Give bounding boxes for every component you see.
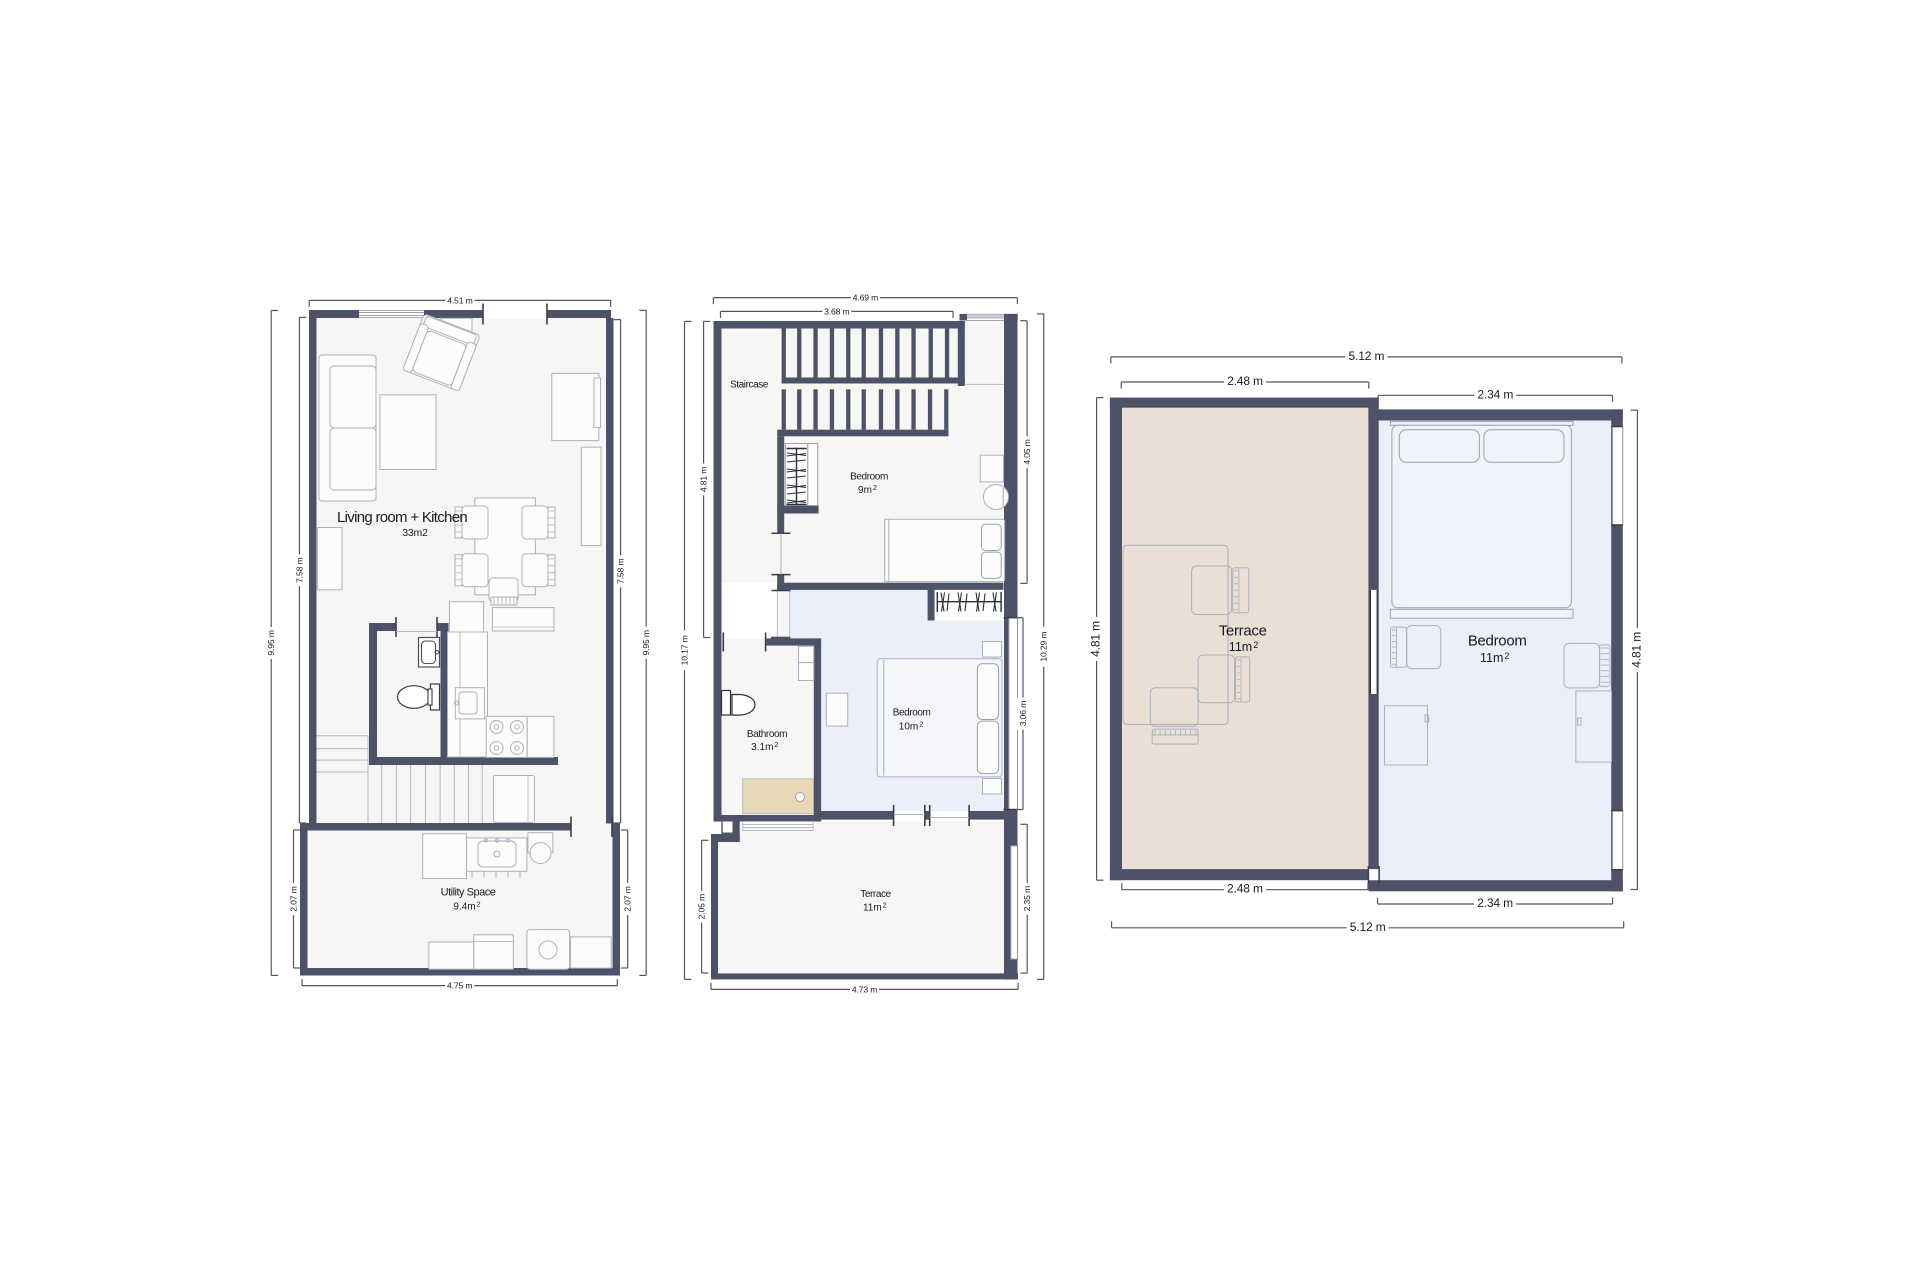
svg-text:2.35 m: 2.35 m bbox=[1022, 886, 1032, 911]
svg-text:2.48 m: 2.48 m bbox=[1227, 374, 1263, 388]
svg-text:7.58 m: 7.58 m bbox=[294, 557, 304, 582]
svg-text:Utility Space: Utility Space bbox=[441, 887, 496, 899]
svg-text:33m2: 33m2 bbox=[402, 527, 428, 539]
svg-text:4.73 m: 4.73 m bbox=[852, 984, 877, 994]
svg-text:3.06 m: 3.06 m bbox=[1018, 701, 1028, 726]
svg-text:3.68 m: 3.68 m bbox=[824, 306, 849, 316]
svg-text:9.95 m: 9.95 m bbox=[641, 630, 651, 655]
svg-text:9.95 m: 9.95 m bbox=[266, 630, 276, 655]
svg-text:7.58 m: 7.58 m bbox=[616, 559, 626, 584]
svg-text:Bedroom: Bedroom bbox=[1468, 633, 1527, 650]
svg-text:4.05 m: 4.05 m bbox=[1022, 439, 1032, 464]
svg-text:4.69 m: 4.69 m bbox=[853, 293, 878, 303]
svg-text:2.48 m: 2.48 m bbox=[1227, 882, 1263, 896]
svg-text:2.05 m: 2.05 m bbox=[697, 894, 707, 919]
svg-text:Bedroom: Bedroom bbox=[850, 472, 888, 483]
svg-text:10.29 m: 10.29 m bbox=[1039, 632, 1049, 662]
svg-text:2.07 m: 2.07 m bbox=[289, 886, 299, 911]
svg-text:Bathroom: Bathroom bbox=[747, 729, 787, 740]
svg-text:2.34 m: 2.34 m bbox=[1477, 896, 1513, 910]
svg-text:Bedroom: Bedroom bbox=[893, 708, 931, 719]
svg-text:5.12 m: 5.12 m bbox=[1349, 349, 1385, 363]
svg-text:4.75 m: 4.75 m bbox=[447, 981, 472, 991]
svg-text:4.81 m: 4.81 m bbox=[1629, 632, 1643, 668]
svg-text:4.81 m: 4.81 m bbox=[699, 467, 709, 492]
svg-text:Terrace: Terrace bbox=[1219, 623, 1267, 640]
svg-text:Living room + Kitchen: Living room + Kitchen bbox=[337, 509, 467, 526]
svg-text:Staircase: Staircase bbox=[730, 380, 769, 391]
svg-text:2.34 m: 2.34 m bbox=[1477, 387, 1513, 401]
svg-text:5.12 m: 5.12 m bbox=[1350, 920, 1386, 934]
svg-text:4.51 m: 4.51 m bbox=[447, 295, 472, 305]
svg-text:4.81 m: 4.81 m bbox=[1089, 621, 1103, 657]
svg-text:Terrace: Terrace bbox=[860, 889, 891, 900]
svg-text:10.17 m: 10.17 m bbox=[680, 635, 690, 665]
svg-text:2.07 m: 2.07 m bbox=[623, 886, 633, 911]
